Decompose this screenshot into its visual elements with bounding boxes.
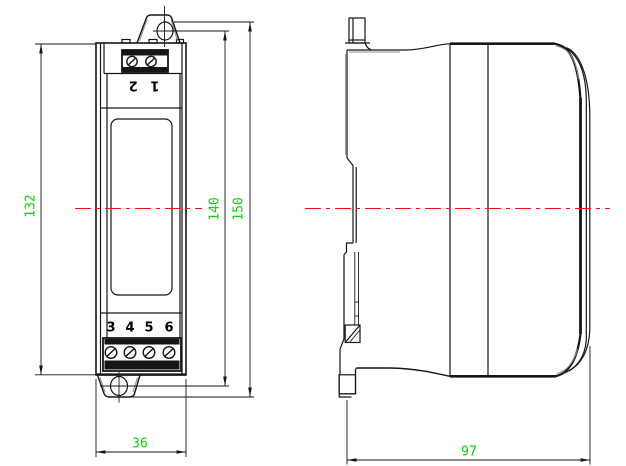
terminal-label-4: 4 xyxy=(125,322,134,335)
technical-drawing-canvas: 132 140 150 36 97 1 2 3 4 5 6 xyxy=(0,0,626,466)
terminal-label-6: 6 xyxy=(164,322,173,335)
dimension-label-front-width: 36 xyxy=(132,438,148,451)
front-view xyxy=(96,6,186,403)
dimension-label-hole-spacing: 140 xyxy=(209,197,222,220)
din-rail-clip xyxy=(339,50,360,397)
dimension-label-overall-height: 150 xyxy=(233,197,246,220)
display-window xyxy=(111,119,172,295)
dimension-lines xyxy=(35,22,590,465)
top-terminal-block xyxy=(122,50,168,72)
terminal-label-3: 3 xyxy=(106,322,115,335)
dimension-label-body-height: 132 xyxy=(25,194,38,217)
line-art xyxy=(0,0,626,466)
side-view xyxy=(339,18,590,397)
terminal-label-5: 5 xyxy=(144,322,153,335)
top-mounting-tab xyxy=(137,6,180,47)
dimension-label-side-depth: 97 xyxy=(461,446,477,459)
bottom-terminal-block xyxy=(103,338,181,371)
terminal-label-top-1-2: 1 2 xyxy=(125,78,160,91)
